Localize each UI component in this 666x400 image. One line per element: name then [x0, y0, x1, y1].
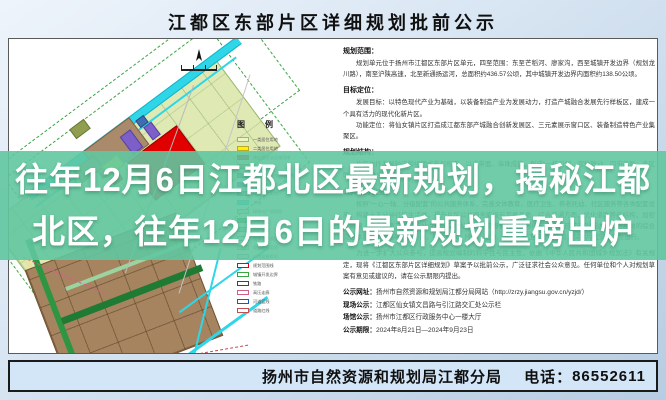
plan-section: 规划范围： 规划单元位于扬州市江都区东部片区单元，四至范围：东至芒稻河、廖家沟，…	[343, 46, 655, 80]
legend-item-label: 道路红线	[253, 308, 270, 314]
footer-agency: 扬州市自然资源和规划局江都分局	[262, 366, 502, 387]
publicity-value: 江都区仙女镇文昌路与引江路交汇处公示栏	[376, 302, 501, 309]
legend-item: 城镇开发边界	[237, 270, 337, 279]
footer-bar: 扬州市自然资源和规划局江都分局 电话： 86552611	[8, 360, 658, 392]
page-title: 江都区东部片区详细规划批前公示	[0, 9, 666, 35]
legend-item: 高压走廊	[237, 288, 337, 297]
legend-swatch	[237, 281, 249, 286]
publicity-value: 2024年8月21日—2024年9月23日	[376, 327, 474, 334]
legend-swatch	[237, 263, 249, 268]
legend-item-label: 一类居住用地	[253, 137, 278, 143]
publicity-label: 公示期限：	[343, 327, 376, 334]
headline-line-2: 北区，往年12月6日的最新规划重磅出炉	[32, 206, 634, 257]
section-heading: 规划范围：	[343, 46, 655, 56]
legend-swatch	[237, 290, 249, 295]
publicity-lines: 公示网址：扬州市自然资源和规划局江都分局网站（http://zrzy.jiang…	[343, 287, 655, 337]
legend-item: 铁路	[237, 279, 337, 288]
scale-bar	[181, 67, 217, 71]
legend-item-label: 高压走廊	[253, 290, 270, 296]
headline-line-1: 往年12月6日江都北区最新规划，揭秘江都	[15, 154, 651, 205]
section-body: 发展目标：以特色现代产业为基础，以装备制造产业为发展动力，打造产城融合发展先行样…	[343, 97, 655, 142]
publicity-value: 扬州市自然资源和规划局江都分局网站（http://zrzy.jiangsu.go…	[376, 289, 588, 296]
legend-item: 规划范围线	[237, 261, 337, 270]
legend-swatch	[237, 308, 249, 313]
legend-item-label: 城镇开发边界	[253, 272, 278, 278]
section-body: 规划单元位于扬州市江都区东部片区单元，四至范围：东至芒稻河、廖家沟，西至城镇开发…	[343, 58, 655, 80]
legend-item: 一类居住用地	[237, 135, 337, 144]
section-heading: 目标定位：	[343, 85, 655, 95]
publicity-line: 场馆公示：扬州市江都区行政服务中心一楼大厅	[343, 312, 655, 325]
compass-icon	[193, 49, 205, 63]
headline-overlay-banner: 往年12月6日江都北区最新规划，揭秘江都 北区，往年12月6日的最新规划重磅出炉	[0, 151, 666, 260]
legend-item-label: 规划范围线	[253, 263, 274, 269]
publicity-label: 现场公示：	[343, 302, 376, 309]
publicity-label: 场馆公示：	[343, 314, 376, 321]
footer-phone-label: 电话：	[524, 366, 572, 387]
publicity-value: 扬州市江都区行政服务中心一楼大厅	[376, 314, 482, 321]
publicity-line: 公示网址：扬州市自然资源和规划局江都分局网站（http://zrzy.jiang…	[343, 287, 655, 300]
publicity-line: 现场公示：江都区仙女镇文昌路与引江路交汇处公示栏	[343, 300, 655, 313]
publicity-line: 公示期限：2024年8月21日—2024年9月23日	[343, 325, 655, 338]
legend-swatch	[237, 137, 249, 142]
publicity-label: 公示网址：	[343, 289, 376, 296]
footer-phone-number: 86552611	[572, 368, 646, 385]
plan-section: 目标定位： 发展目标：以特色现代产业为基础，以装备制造产业为发展动力，打造产城融…	[343, 85, 655, 142]
legend-swatch	[237, 299, 249, 304]
legend-item: 道路红线	[237, 306, 337, 315]
legend-item: 河道蓝线	[237, 297, 337, 306]
legend-item-label: 铁路	[253, 281, 261, 287]
legend-title: 图 例	[237, 119, 337, 130]
legend-swatch	[237, 272, 249, 277]
legend-item-label: 河道蓝线	[253, 299, 270, 305]
